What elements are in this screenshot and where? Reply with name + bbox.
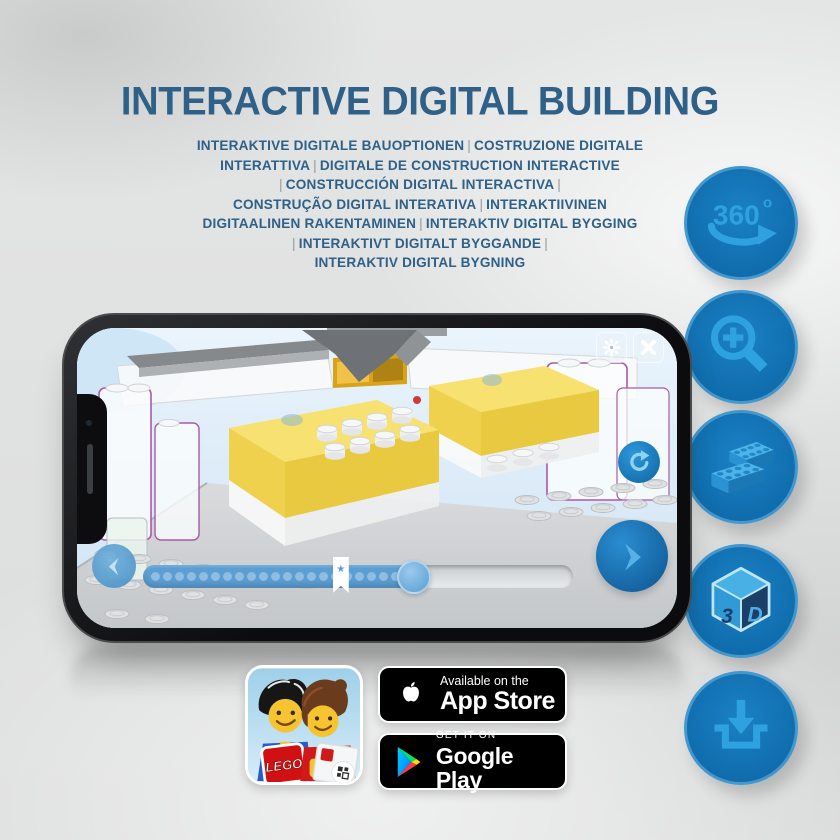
360-rotate-icon: 360 o [702, 184, 780, 262]
subtitle: INTERAKTIVE DIGITALE BAUOPTIONEN|COSTRUZ… [110, 136, 730, 273]
rotate-arrow-icon [626, 449, 652, 475]
progress-dot [211, 572, 220, 581]
progress-dot [151, 572, 160, 581]
progress-knob[interactable] [397, 560, 431, 594]
feature-360-badge: 360 o [684, 166, 798, 280]
progress-dot [223, 572, 232, 581]
google-play-tagline: GET IT ON [436, 731, 565, 742]
lego-app-icon[interactable]: LEGO [245, 665, 363, 785]
chevron-left-icon [101, 553, 127, 579]
page-title: INTERACTIVE DIGITAL BUILDING [0, 80, 840, 126]
app-store-tagline: Available on the [440, 675, 555, 688]
progress-dot [187, 572, 196, 581]
google-play-badge[interactable]: GET IT ON Google Play [378, 733, 567, 790]
google-play-name: Google Play [436, 744, 565, 792]
progress-dot [199, 572, 208, 581]
camera-dot [86, 420, 92, 426]
lego-minifigures-art: LEGO [248, 668, 360, 782]
progress-dot [307, 572, 316, 581]
phone-notch [77, 394, 107, 544]
rotate-view-button[interactable] [618, 441, 660, 483]
svg-text:360: 360 [713, 200, 760, 231]
progress-dot [271, 572, 280, 581]
3d-cube-icon: 3 D [702, 562, 780, 640]
app-store-text: Available on the App Store [440, 675, 555, 714]
progress-dot [175, 572, 184, 581]
progress-dot [295, 572, 304, 581]
apple-logo-icon [393, 674, 429, 716]
zoom-in-magnifier-icon [702, 308, 780, 386]
download-icon [702, 689, 780, 767]
progress-dot [283, 572, 292, 581]
previous-step-button[interactable] [92, 544, 136, 588]
svg-text:o: o [763, 195, 772, 211]
progress-dot [367, 572, 376, 581]
speaker-slit [87, 444, 93, 494]
progress-bar[interactable]: ★ [143, 565, 573, 588]
progress-dot [319, 572, 328, 581]
feature-bricks-badge [684, 410, 798, 524]
lego-bricks-icon [702, 428, 780, 506]
phone-mockup: ★ [62, 313, 692, 643]
app-store-name: App Store [440, 688, 555, 714]
close-icon [639, 338, 658, 357]
google-play-logo-icon [393, 744, 425, 780]
next-step-button[interactable] [596, 520, 668, 592]
progress-dot [235, 572, 244, 581]
svg-text:3: 3 [721, 605, 733, 628]
feature-download-badge [684, 671, 798, 785]
gear-icon [601, 337, 622, 358]
chevron-right-icon [612, 536, 652, 576]
settings-button[interactable] [596, 332, 627, 363]
progress-dot [163, 572, 172, 581]
progress-dot [355, 572, 364, 581]
google-play-text: GET IT ON Google Play [436, 731, 565, 792]
feature-3d-badge: 3 D [684, 544, 798, 658]
feature-zoom-badge [684, 290, 798, 404]
app-store-badge[interactable]: Available on the App Store [378, 666, 567, 723]
progress-dot [379, 572, 388, 581]
svg-text:D: D [747, 603, 762, 626]
close-button[interactable] [633, 332, 664, 363]
phone-reflection [70, 646, 684, 710]
progress-dot [247, 572, 256, 581]
poster: INTERACTIVE DIGITAL BUILDING INTERAKTIVE… [0, 0, 840, 840]
progress-fill [143, 565, 431, 588]
progress-dot [259, 572, 268, 581]
app-screen: ★ [77, 328, 677, 628]
